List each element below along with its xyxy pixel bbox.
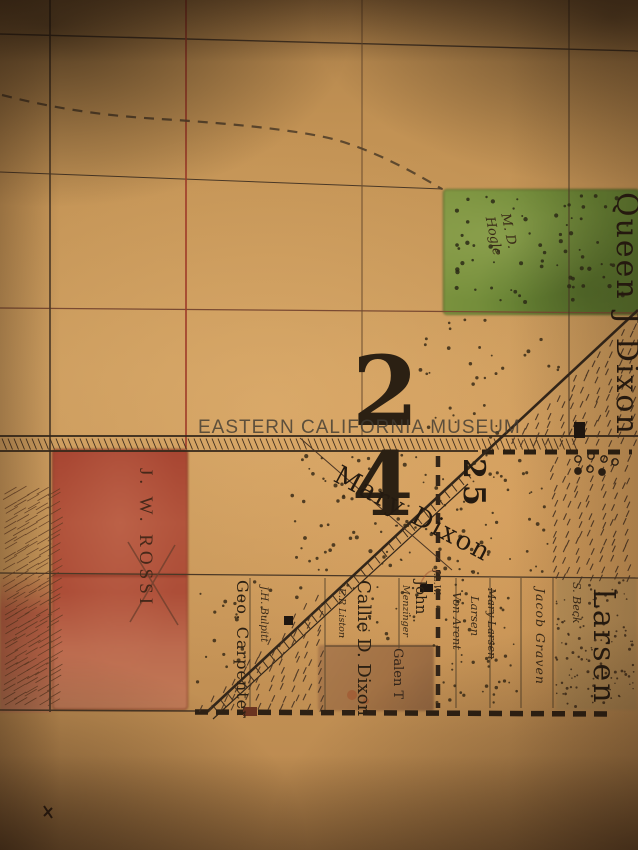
parcel-label-er-liston: E.R Liston xyxy=(335,588,346,648)
parcel-label-jacob-graven: Jacob Graven xyxy=(534,588,547,685)
parcel-label-menzinger: Menzinger xyxy=(401,585,411,637)
parcel-label-galen: Galen T xyxy=(391,648,404,699)
parcel-label-queen-j-dixon: Queen J Dixon xyxy=(611,192,638,436)
trail-dashed-line xyxy=(2,95,442,189)
parcel-label-mary-larsen-crossed-out: Mary Larsen xyxy=(486,588,497,659)
rossi-red-parcel xyxy=(52,449,188,710)
plat-map-photo: 2 4 25 Mary Dixon Queen J Dixon J. W. RO… xyxy=(0,0,638,850)
parcel-label-jh-bulpitt: J.H. Bulpitt xyxy=(258,586,268,642)
section-number-25: 25 xyxy=(458,458,488,512)
parcel-label-s-beck: S. Beck xyxy=(571,582,582,624)
dixon-brown-parcel xyxy=(318,645,434,711)
parcel-label-jlw: J.L.W. xyxy=(431,570,440,595)
parcel-label-geo-carpenter: Geo. Carpenter xyxy=(234,580,250,719)
parcel-label-callie-d-dixon: Callie D. Dixon xyxy=(354,580,372,716)
road-hatch-texture xyxy=(2,439,577,450)
parcel-label-larsen-small: Larsen xyxy=(469,596,481,636)
orchard-symbols xyxy=(575,453,618,475)
left-red-wash xyxy=(0,574,52,712)
parcel-label-von-arent: Von Arent xyxy=(451,592,463,650)
museum-watermark: EASTERN CALIFORNIA MUSEUM xyxy=(198,418,521,437)
paper-fold-line xyxy=(53,574,187,577)
parcel-label-larsen-large: Larsen xyxy=(588,588,618,705)
parcel-label-jw-rossi: J. W. ROSSI xyxy=(136,468,155,608)
ink-mark xyxy=(44,806,52,818)
parcel-label-john: John xyxy=(413,580,428,614)
